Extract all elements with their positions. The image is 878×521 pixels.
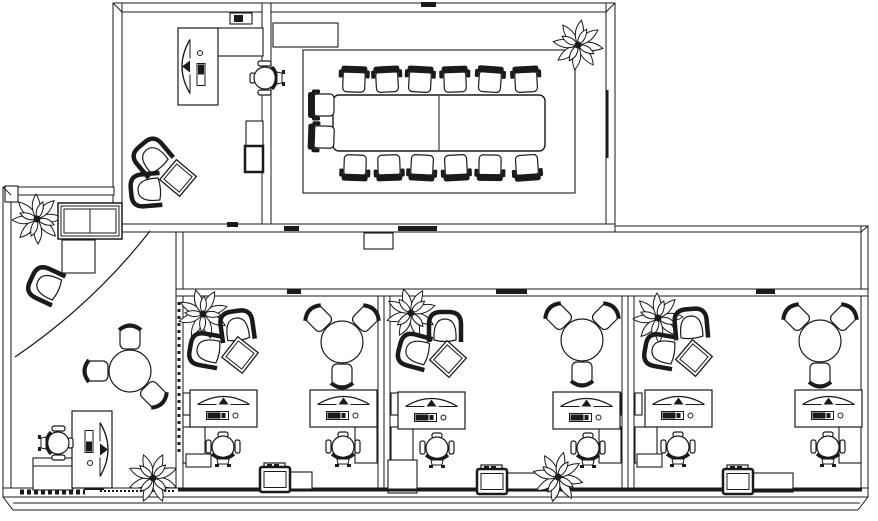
reception-desk-computer (72, 411, 112, 488)
round-table-bay-2 (542, 300, 622, 385)
door-leaf-bay-1 (287, 289, 301, 294)
lounge-armchair (25, 264, 66, 306)
conference-chair (373, 154, 405, 181)
side-table-diamond (430, 341, 467, 378)
round-table-chair (571, 362, 593, 386)
private-office-left-wall (113, 3, 122, 232)
conference-chair (307, 121, 334, 153)
printer (260, 463, 290, 492)
side-table-diamond (160, 160, 197, 197)
reception-counter (33, 458, 73, 490)
door-threshold (284, 226, 299, 231)
corner-post (5, 186, 18, 202)
office-desk-computer (178, 28, 218, 105)
conference-chair (474, 155, 505, 182)
workstation-task-chair (420, 433, 454, 468)
side-table-diamond (676, 340, 713, 377)
conference-chair (339, 154, 371, 181)
round-table (321, 321, 363, 363)
reception-square-table (62, 240, 95, 273)
wall-shelf (635, 393, 642, 415)
workstation-desk (398, 392, 465, 429)
round-table-chair (809, 363, 831, 387)
workstation-desk (553, 392, 620, 429)
door-leaf-conference (398, 226, 437, 231)
round-table-chair (85, 360, 109, 382)
office-file-cabinet-top (246, 121, 263, 146)
lounge-armchair (187, 331, 222, 368)
lounge-armchair (395, 331, 432, 370)
miter-bottom-left (3, 497, 13, 510)
window-unit (58, 203, 122, 239)
wall-shelf (391, 393, 398, 415)
reception-left-wall (3, 187, 11, 497)
corridor-top-wall-right (615, 226, 868, 232)
desk-return (391, 427, 413, 463)
lounge-armchair (674, 308, 708, 341)
phone-handset (234, 15, 243, 22)
round-table (799, 320, 841, 362)
floor-plan-drawing (0, 0, 878, 521)
top-wall (113, 3, 615, 12)
printer (723, 465, 753, 494)
workstation-desk (645, 390, 712, 427)
printer (477, 465, 507, 494)
office-task-chair (250, 61, 285, 95)
door-threshold (227, 222, 238, 227)
reception-top-wall (3, 187, 114, 195)
conference-chair (338, 65, 370, 92)
conference-chair (439, 65, 471, 92)
round-table (109, 350, 151, 392)
low-cabinet (186, 454, 211, 467)
workstation-desk (190, 390, 257, 427)
workstation-task-chair (661, 432, 695, 467)
office-file-cabinet-bottom (245, 146, 263, 172)
door-leaf-bay-3 (756, 289, 775, 294)
round-table-bay-3 (780, 301, 860, 386)
lounge-armchair (429, 312, 461, 342)
floor-plan (0, 0, 878, 521)
corridor-top-wall-left (121, 224, 615, 232)
corridor-sign (364, 233, 393, 249)
round-table-reception (85, 326, 170, 411)
round-table-chair (331, 364, 353, 388)
conference-chair (308, 90, 334, 121)
plant-reception-top (12, 194, 62, 244)
low-cabinet (388, 460, 417, 493)
building-right-wall (861, 226, 868, 497)
conference-credenza (273, 23, 338, 47)
door-leaf-bay-2 (496, 289, 527, 294)
office-credenza (217, 28, 263, 56)
low-cabinet (637, 454, 662, 467)
round-table (561, 319, 603, 361)
round-table-bay-1 (302, 302, 382, 387)
reception-right-wall (176, 232, 183, 497)
workstation-desk (310, 390, 377, 427)
workstation-desk (795, 390, 862, 427)
reception-task-chair (38, 426, 73, 460)
wall-shelf (183, 393, 190, 415)
door-threshold-top (421, 2, 436, 7)
round-table-chair (119, 326, 141, 350)
side-table-diamond (222, 337, 258, 373)
